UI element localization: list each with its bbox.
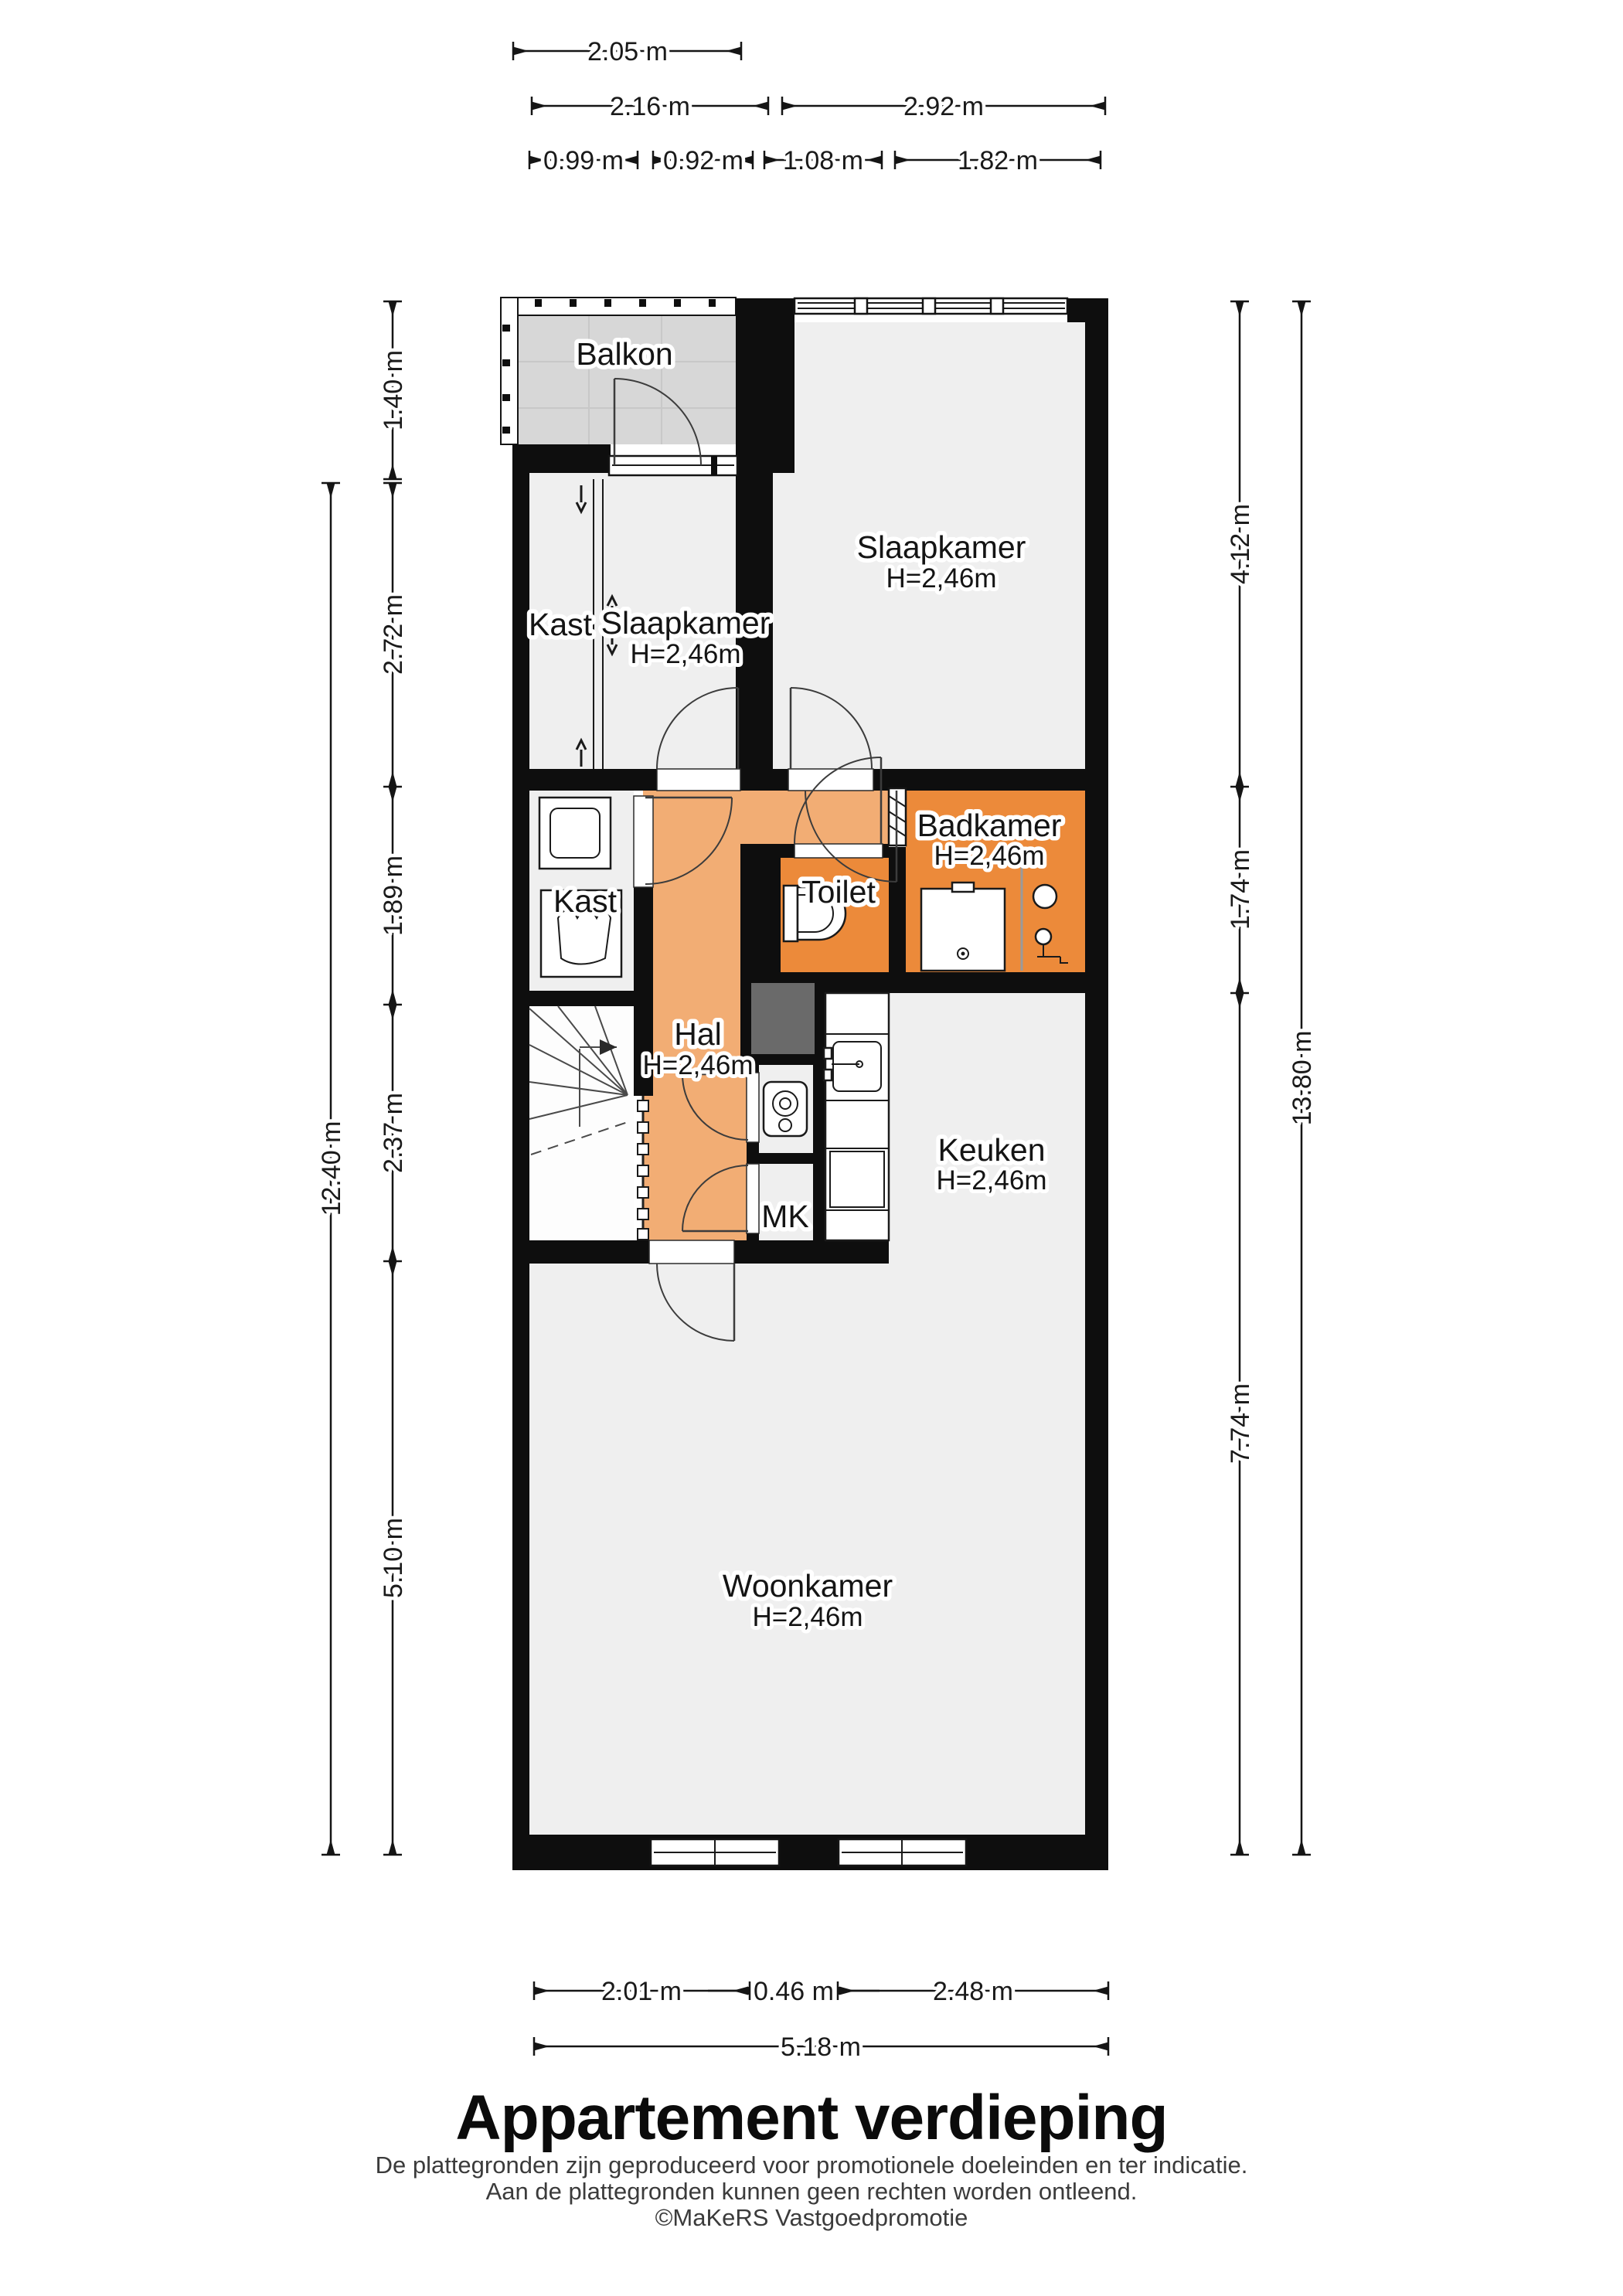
wall-toilet-stub-left: [781, 844, 794, 858]
room-label-woonkamer: Woonkamer: [723, 1568, 893, 1604]
dim-top-6: 1.08 m: [783, 146, 863, 175]
dim-bottom-3: 2.48 m: [933, 1977, 1013, 2006]
dim-top-4: 0.99 m: [543, 146, 624, 175]
room-floor-hal: [643, 791, 748, 1240]
room-label-slaapkamer-right: Slaapkamer: [857, 529, 1026, 565]
room-label-kast-upper: Kast: [529, 607, 593, 642]
room-label-kast-lower: Kast: [553, 883, 618, 919]
disclaimer-line-2: Aan de plattegronden kunnen geen rechten…: [486, 2178, 1138, 2205]
dim-left-1: 1.40 m: [379, 350, 408, 430]
dim-bottom-1: 2.01 m: [601, 1977, 682, 2006]
wall-closet-left-b: [747, 1142, 759, 1164]
room-label-badkamer: Badkamer: [917, 808, 1062, 843]
dim-top-3: 2.92 m: [903, 92, 984, 121]
wall-closet-left-c: [747, 1233, 759, 1240]
kitchen-faucet-handle-1: [824, 1048, 832, 1059]
wall-kast-bottom: [512, 991, 653, 1006]
room-height-badkamer: H=2,46m: [934, 841, 1045, 871]
dim-left-4: 2.37 m: [379, 1093, 408, 1173]
kitchen-faucet-handle-2: [824, 1070, 832, 1080]
wall-toilet-left: [740, 844, 781, 972]
wall-woonkamer-top-left: [512, 1240, 649, 1264]
room-label-hal: Hal: [674, 1016, 722, 1052]
opening-kast-lower: [634, 796, 653, 887]
opening-boiler-closet: [747, 1073, 759, 1142]
window-balcony-slider-post: [711, 456, 717, 475]
wall-closet-right: [813, 972, 825, 1240]
shower-mixer-icon: [1036, 929, 1051, 944]
floorplan-page: 2.05 m 2.16 m 2.92 m 0.99 m 0.92 m 1.08 …: [0, 0, 1623, 2296]
wall-top-center-chunk: [736, 298, 794, 473]
wall-closet-divider: [759, 1153, 813, 1164]
dim-top-5: 0.92 m: [663, 146, 743, 175]
dim-left-3: 1.89 m: [379, 855, 408, 936]
kitchen-counter: [825, 993, 889, 1240]
room-height-slaapkamer-right: H=2,46m: [886, 563, 997, 594]
room-floor-hal-vestibule: [740, 791, 889, 847]
dim-right-total: 13.80 m: [1288, 1031, 1317, 1126]
copyright-line: ©MaKeRS Vastgoedpromotie: [655, 2204, 968, 2231]
balcony-railing-left: [501, 298, 518, 444]
wall-exterior-right: [1085, 298, 1108, 1870]
window-mullion-2: [923, 298, 935, 314]
room-floor-stairs: [529, 1006, 634, 1240]
opening-toilet: [794, 844, 883, 858]
footer: Appartement verdieping De plattegronden …: [376, 2083, 1248, 2231]
room-height-slaapkamer-left: H=2,46m: [631, 639, 741, 669]
room-height-hal: H=2,46m: [643, 1050, 754, 1080]
dim-top-2: 2.16 m: [610, 92, 690, 121]
shaft: [751, 983, 815, 1054]
wall-mid-left: [512, 769, 657, 791]
room-label-mk: MK: [761, 1199, 809, 1234]
opening-slaapkamer-left: [657, 769, 740, 791]
page-title: Appartement verdieping: [455, 2083, 1167, 2153]
toilet-tank: [784, 886, 798, 941]
dim-bottom-total: 5.18 m: [781, 2032, 861, 2062]
window-mullion-1: [855, 298, 867, 314]
shower-head-icon: [1033, 885, 1056, 908]
dim-left-2: 2.72 m: [379, 594, 408, 675]
wall-mid-center: [740, 769, 788, 791]
room-floor-woonkamer: [529, 1264, 1085, 1835]
room-label-balkon: Balkon: [576, 336, 672, 372]
window-mullion-3: [991, 298, 1003, 314]
wall-exterior-bottom: [512, 1835, 1108, 1870]
disclaimer-line-1: De plattegronden zijn geproduceerd voor …: [376, 2151, 1248, 2179]
bathroom-basin-faucet: [952, 883, 974, 892]
room-label-keuken: Keuken: [937, 1132, 1045, 1168]
wall-exterior-left: [512, 444, 529, 1870]
room-label-slaapkamer-left: Slaapkamer: [601, 605, 771, 641]
dim-right-3: 7.74 m: [1226, 1383, 1255, 1464]
floor-plan-canvas: 2.05 m 2.16 m 2.92 m 0.99 m 0.92 m 1.08 …: [0, 0, 1623, 2296]
opening-mk: [747, 1164, 759, 1233]
opening-woonkamer: [649, 1240, 734, 1264]
dim-left-5: 5.10 m: [379, 1518, 408, 1598]
opening-slaapkamer-right: [788, 769, 873, 791]
wall-woonkamer-top-right: [734, 1240, 889, 1264]
dim-bottom-2: 0.46 m: [754, 1977, 834, 2006]
dim-top-1: 2.05 m: [587, 37, 668, 66]
stair-balustrade-posts: [638, 1100, 648, 1240]
room-height-keuken: H=2,46m: [937, 1165, 1047, 1196]
dim-left-total: 12.40 m: [317, 1121, 346, 1216]
bathroom-basin-drain-dot: [961, 952, 965, 956]
dim-right-1: 4.12 m: [1226, 504, 1255, 584]
room-height-woonkamer: H=2,46m: [753, 1602, 863, 1632]
dim-right-2: 1.74 m: [1226, 849, 1255, 930]
dim-top-7: 1.82 m: [958, 146, 1038, 175]
room-label-toilet: Toilet: [801, 874, 876, 910]
